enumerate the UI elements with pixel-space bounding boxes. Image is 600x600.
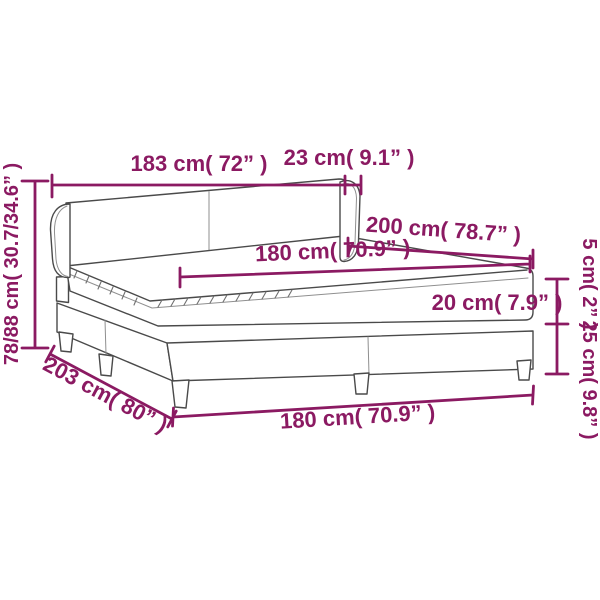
bed-dimension-diagram: 183 cm( 72” ) 23 cm( 9.1” ) 200 cm( 78.7… (0, 0, 600, 600)
headboard-left-post (57, 277, 69, 303)
dim-headboard-width-label: 183 cm( 72” ) (131, 151, 268, 176)
box-spring-front-face (167, 331, 533, 381)
dim-topper-height-label: 5 cm( 2” ) (578, 238, 600, 329)
dim-base-height-label: 25 cm( 9.8” ) (578, 321, 600, 440)
dim-mattress-height-label: 20 cm( 7.9” ) (432, 290, 563, 315)
dim-bed-width-label: 180 cm( 70.9” ) (279, 399, 436, 433)
bed-leg (172, 380, 189, 408)
bed-leg (99, 354, 113, 376)
headboard-left-roll (50, 204, 70, 278)
bed-dimension-diagram-page: 183 cm( 72” ) 23 cm( 9.1” ) 200 cm( 78.7… (0, 0, 600, 600)
dim-headboard-wing-label: 23 cm( 9.1” ) (284, 145, 415, 170)
bed-leg (59, 332, 73, 352)
dim-line-headboard-height (22, 181, 48, 348)
dim-headboard-height-label: 78/88 cm( 30.7/34.6” ) (1, 163, 23, 365)
bed-leg (517, 360, 531, 380)
bed-leg (354, 373, 369, 394)
